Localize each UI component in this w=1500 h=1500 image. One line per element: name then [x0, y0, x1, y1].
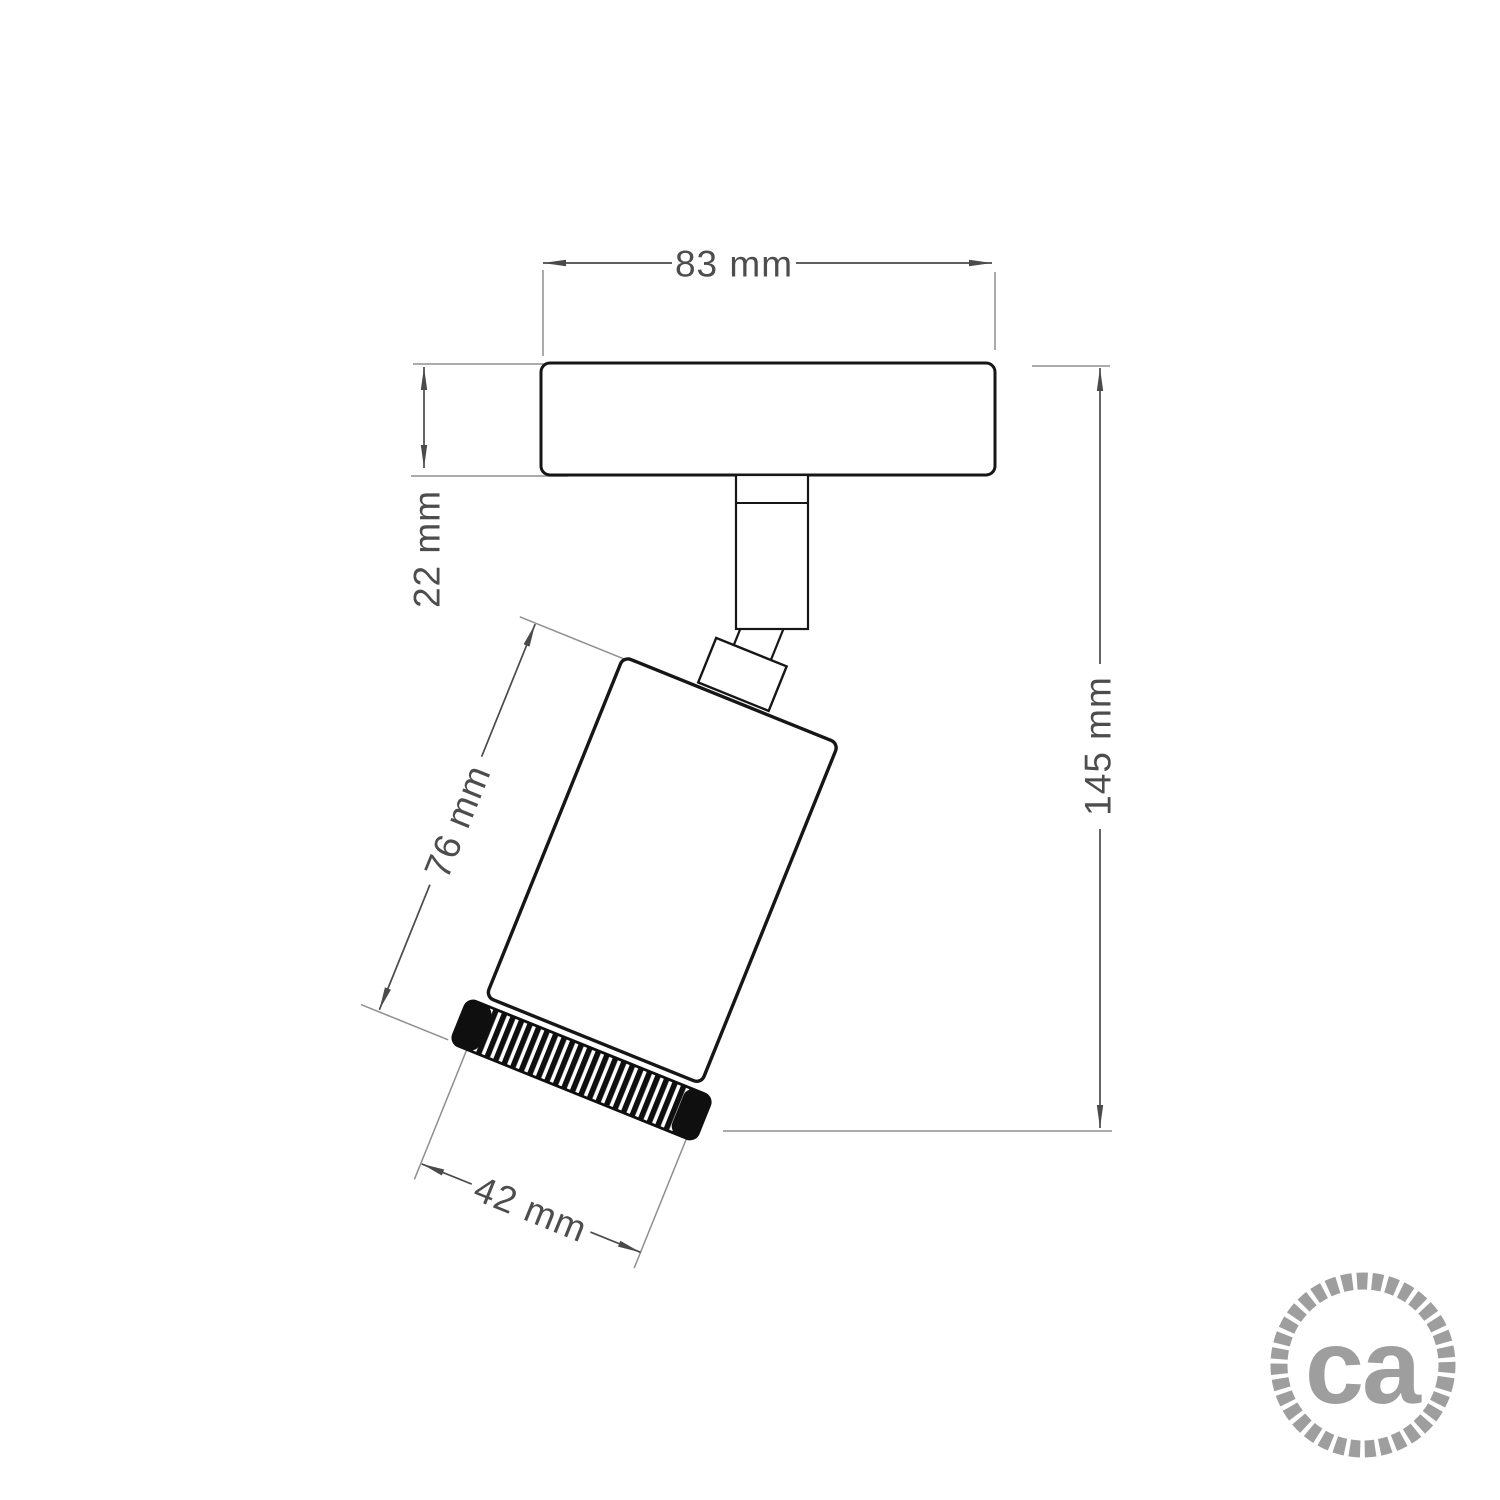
brand-logo-text: ca — [1305, 1308, 1422, 1426]
dim-label-plate-thickness: 22 mm — [407, 490, 448, 608]
ceiling-plate — [541, 363, 995, 475]
dim-label-overall-height: 145 mm — [1078, 676, 1119, 816]
dim-label-plate-width: 83 mm — [675, 244, 793, 285]
dimension-line — [590, 1232, 640, 1252]
dimension-line — [482, 624, 536, 757]
dimension-line — [422, 1164, 472, 1184]
lamp-head-group: 76 mm 42 mm — [306, 566, 873, 1276]
dim-plate-width: 83 mm — [543, 244, 995, 357]
extension-line — [520, 617, 639, 665]
extension-line — [414, 1050, 466, 1179]
lamp-stem — [736, 475, 808, 629]
lamp-body — [486, 657, 839, 1084]
brand-logo: ca — [1266, 1268, 1461, 1463]
technical-drawing: 83 mm 22 mm 145 mm 76 mm — [0, 0, 1500, 1500]
drawing-canvas: 83 mm 22 mm 145 mm 76 mm — [0, 0, 1500, 1500]
dimension-line — [379, 885, 430, 1010]
dim-label-body-length: 76 mm — [416, 759, 498, 884]
extension-line — [361, 1005, 448, 1040]
dim-label-body-diameter: 42 mm — [468, 1168, 593, 1250]
